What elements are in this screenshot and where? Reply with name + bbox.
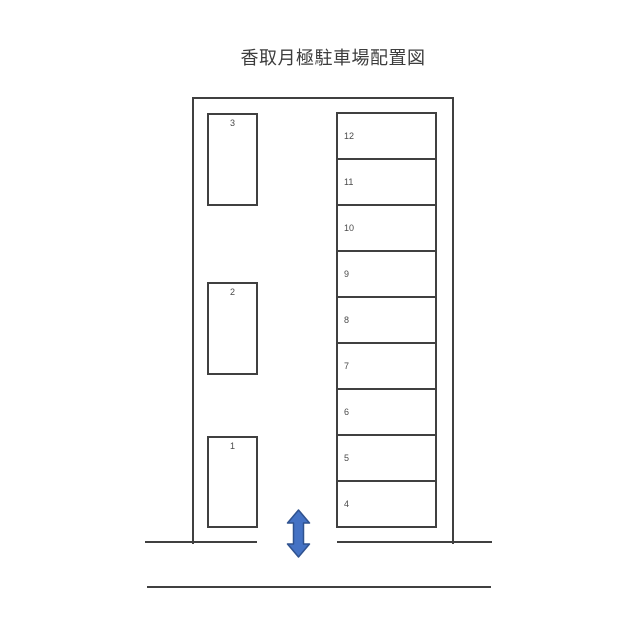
parking-layout-diagram: 香取月極駐車場配置図 3 2 1 12 11 10 9 8 7 6 5 4 bbox=[0, 0, 639, 640]
parking-space-5: 5 bbox=[338, 436, 435, 482]
parking-space-9: 9 bbox=[338, 252, 435, 298]
parking-space-1: 1 bbox=[207, 436, 258, 528]
parking-space-8: 8 bbox=[338, 298, 435, 344]
parking-space-7: 7 bbox=[338, 344, 435, 390]
parking-space-3: 3 bbox=[207, 113, 258, 206]
parking-space-11: 11 bbox=[338, 160, 435, 206]
parking-space-column-right: 12 11 10 9 8 7 6 5 4 bbox=[336, 112, 437, 528]
parking-space-6: 6 bbox=[338, 390, 435, 436]
parking-space-10: 10 bbox=[338, 206, 435, 252]
entrance-exit-double-arrow-icon bbox=[286, 509, 311, 558]
road-edge-lower bbox=[147, 586, 491, 588]
road-edge-upper-left-segment bbox=[145, 541, 257, 543]
parking-space-2: 2 bbox=[207, 282, 258, 375]
double-arrow-shape bbox=[288, 510, 310, 557]
parking-space-4: 4 bbox=[338, 482, 435, 526]
page-title: 香取月極駐車場配置図 bbox=[183, 44, 483, 70]
road-edge-upper-right-segment bbox=[337, 541, 492, 543]
parking-space-12: 12 bbox=[338, 114, 435, 160]
